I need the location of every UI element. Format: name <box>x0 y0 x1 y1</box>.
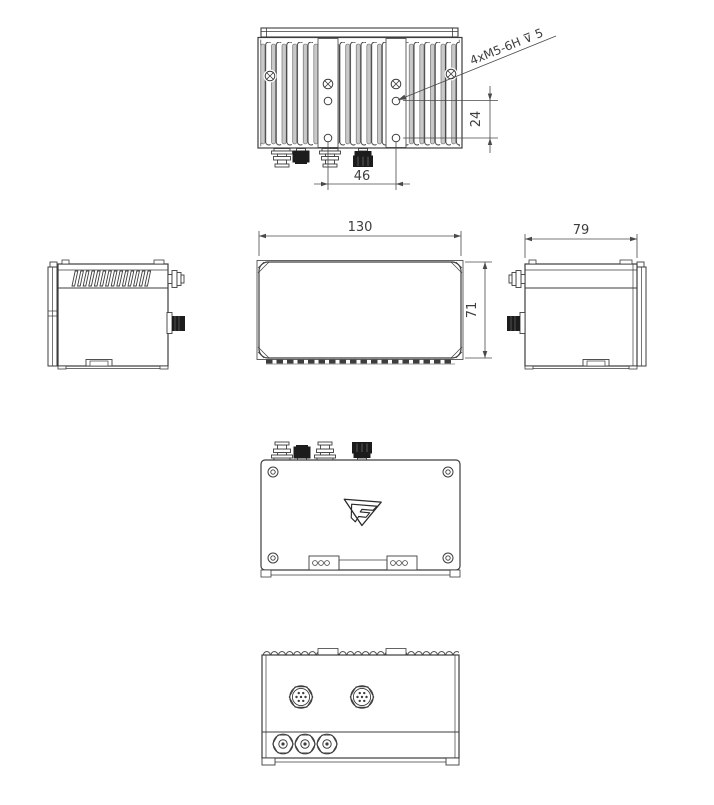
technical-drawing: 46 24 4xM5-6H ⊽ 5 <box>0 0 714 805</box>
top-view-heatsink <box>258 28 462 167</box>
enclosure-back <box>261 460 460 570</box>
dim-depth-79: 79 <box>525 223 637 258</box>
dim-label-71: 71 <box>465 302 480 319</box>
fin-ends-scalloped <box>263 646 459 655</box>
power-connector-icon <box>293 149 309 165</box>
enclosure-front <box>259 262 461 358</box>
antenna-connector-side-icon <box>509 271 525 288</box>
drawing-sheet: 46 24 4xM5-6H ⊽ 5 <box>0 0 714 805</box>
dim-height-71: 71 <box>465 262 492 358</box>
threaded-connector-icon <box>353 149 373 168</box>
enclosure-right <box>525 264 637 366</box>
tapped-hole <box>324 134 332 142</box>
dim-label-79: 79 <box>573 223 590 238</box>
coax-connector-icon <box>317 734 338 754</box>
threaded-connector-side-icon <box>167 313 185 334</box>
heatsink-fins <box>260 42 318 146</box>
coax-connector-icon <box>295 734 316 754</box>
bottom-view <box>262 646 459 765</box>
m8-connector-icon <box>350 686 374 708</box>
dim-width-130: 130 <box>259 220 461 256</box>
dim-label-46: 46 <box>354 169 371 184</box>
heatsink-fins <box>338 42 386 146</box>
power-connector-icon <box>294 445 310 461</box>
threaded-connector-side-icon <box>507 313 525 334</box>
heatsink-flange <box>261 28 458 37</box>
corner-screw-icon <box>443 467 453 477</box>
front-view <box>257 261 463 365</box>
screw-icon <box>390 78 403 91</box>
m8-connector-icon <box>289 686 313 708</box>
heatsink-fins <box>406 42 460 146</box>
antenna-connector-icon <box>272 442 293 461</box>
thread-callout-label: 4xM5-6H ⊽ 5 <box>468 26 545 68</box>
threaded-connector-icon <box>352 442 372 461</box>
coax-connector-icon <box>273 734 294 754</box>
antenna-connector-side-icon <box>168 271 184 288</box>
dim-label-130: 130 <box>348 220 373 235</box>
dim-label-24: 24 <box>469 111 484 128</box>
back-view <box>261 442 460 577</box>
corner-screw-icon <box>443 553 453 563</box>
mounting-channel <box>318 39 338 148</box>
left-side-view <box>48 260 185 369</box>
screw-icon <box>322 78 335 91</box>
corner-screw-icon <box>268 553 278 563</box>
tapped-hole <box>392 97 400 105</box>
corner-screw-icon <box>268 467 278 477</box>
antenna-connector-icon <box>272 149 293 168</box>
antenna-connector-icon <box>315 442 336 461</box>
right-side-view <box>507 260 646 369</box>
screw-icon <box>264 70 277 83</box>
mounting-channel <box>386 39 406 148</box>
tapped-hole <box>392 134 400 142</box>
tapped-hole <box>324 97 332 105</box>
antenna-connector-icon <box>320 149 341 168</box>
